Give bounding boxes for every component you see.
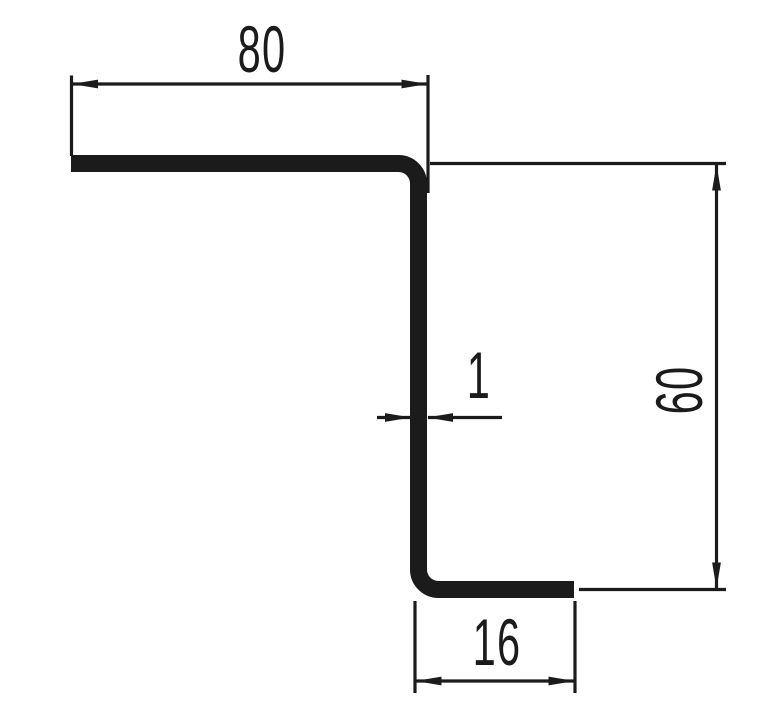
arrowhead-bottom-width-left-icon: [416, 677, 442, 686]
dimension-label-bottom-flange-width: 16: [473, 605, 522, 679]
dimension-label-top-flange-width: 80: [238, 12, 287, 86]
arrowhead-height-bottom-icon: [712, 563, 721, 589]
dimension-label-material-thickness: 1: [467, 338, 491, 412]
profile-dimension-drawing: 80 60 1 16: [0, 0, 765, 713]
arrowhead-top-width-right-icon: [402, 80, 428, 89]
arrowhead-thickness-right-icon: [427, 413, 453, 422]
arrowhead-height-top-icon: [712, 165, 721, 191]
arrowhead-thickness-left-icon: [385, 413, 411, 422]
arrowhead-top-width-left-icon: [72, 80, 98, 89]
technical-drawing-canvas: 80 60 1 16: [0, 0, 765, 713]
arrowhead-bottom-width-right-icon: [549, 677, 575, 686]
dimension-label-overall-height: 60: [642, 366, 716, 415]
profile-outline: [71, 164, 574, 590]
profile-outline-group: [71, 164, 574, 590]
dimension-labels-group: 80 60 1 16: [238, 12, 717, 679]
